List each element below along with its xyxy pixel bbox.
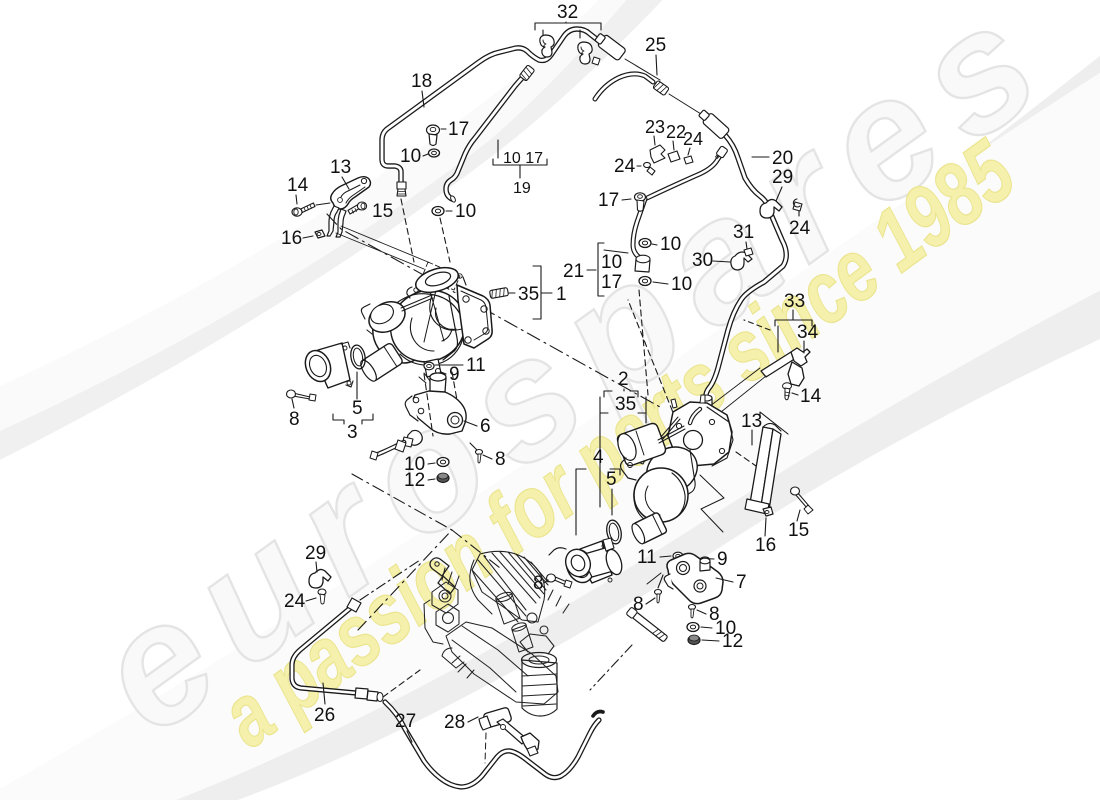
svg-text:10: 10 — [671, 274, 692, 295]
svg-text:5: 5 — [352, 398, 363, 419]
svg-text:10: 10 — [660, 234, 681, 255]
svg-text:10: 10 — [601, 252, 622, 273]
svg-text:27: 27 — [395, 711, 416, 732]
svg-text:24: 24 — [614, 156, 636, 177]
svg-text:5: 5 — [606, 469, 617, 490]
svg-text:11: 11 — [637, 547, 657, 568]
svg-text:19: 19 — [513, 180, 531, 197]
svg-text:13: 13 — [741, 411, 762, 432]
svg-text:16: 16 — [755, 535, 776, 556]
svg-text:8: 8 — [289, 409, 300, 430]
svg-text:24: 24 — [789, 218, 811, 239]
svg-text:10: 10 — [400, 146, 421, 167]
svg-text:28: 28 — [444, 712, 465, 733]
svg-text:30: 30 — [692, 250, 713, 271]
svg-text:14: 14 — [287, 175, 309, 196]
svg-text:15: 15 — [788, 520, 809, 541]
svg-text:16: 16 — [281, 228, 302, 249]
svg-text:17: 17 — [598, 190, 619, 211]
svg-text:14: 14 — [800, 386, 822, 407]
svg-text:33: 33 — [784, 291, 805, 312]
svg-text:26: 26 — [314, 705, 335, 726]
svg-text:12: 12 — [722, 631, 743, 652]
svg-text:7: 7 — [736, 572, 747, 593]
svg-text:20: 20 — [772, 148, 793, 169]
svg-text:24: 24 — [284, 591, 306, 612]
svg-text:3: 3 — [347, 422, 358, 443]
svg-text:11: 11 — [466, 355, 486, 376]
svg-text:17: 17 — [448, 119, 469, 140]
svg-text:9: 9 — [717, 549, 728, 570]
svg-text:13: 13 — [330, 157, 351, 178]
svg-text:23: 23 — [645, 117, 665, 137]
svg-text:31: 31 — [733, 222, 754, 243]
svg-text:17: 17 — [601, 272, 622, 293]
svg-text:15: 15 — [372, 201, 393, 222]
svg-text:29: 29 — [772, 167, 793, 188]
svg-text:12: 12 — [404, 470, 425, 491]
svg-text:1: 1 — [556, 284, 567, 305]
svg-text:21: 21 — [563, 261, 584, 282]
svg-text:29: 29 — [305, 543, 326, 564]
svg-text:6: 6 — [480, 416, 491, 437]
svg-text:25: 25 — [645, 35, 666, 56]
svg-text:18: 18 — [411, 71, 432, 92]
svg-text:2: 2 — [618, 369, 629, 390]
svg-text:35: 35 — [518, 284, 539, 305]
svg-text:35: 35 — [615, 394, 636, 415]
svg-text:24: 24 — [683, 129, 703, 149]
svg-text:34: 34 — [797, 322, 819, 343]
svg-text:10: 10 — [455, 201, 476, 222]
svg-text:32: 32 — [557, 2, 578, 23]
svg-text:8: 8 — [495, 449, 506, 470]
svg-text:4: 4 — [593, 447, 604, 468]
